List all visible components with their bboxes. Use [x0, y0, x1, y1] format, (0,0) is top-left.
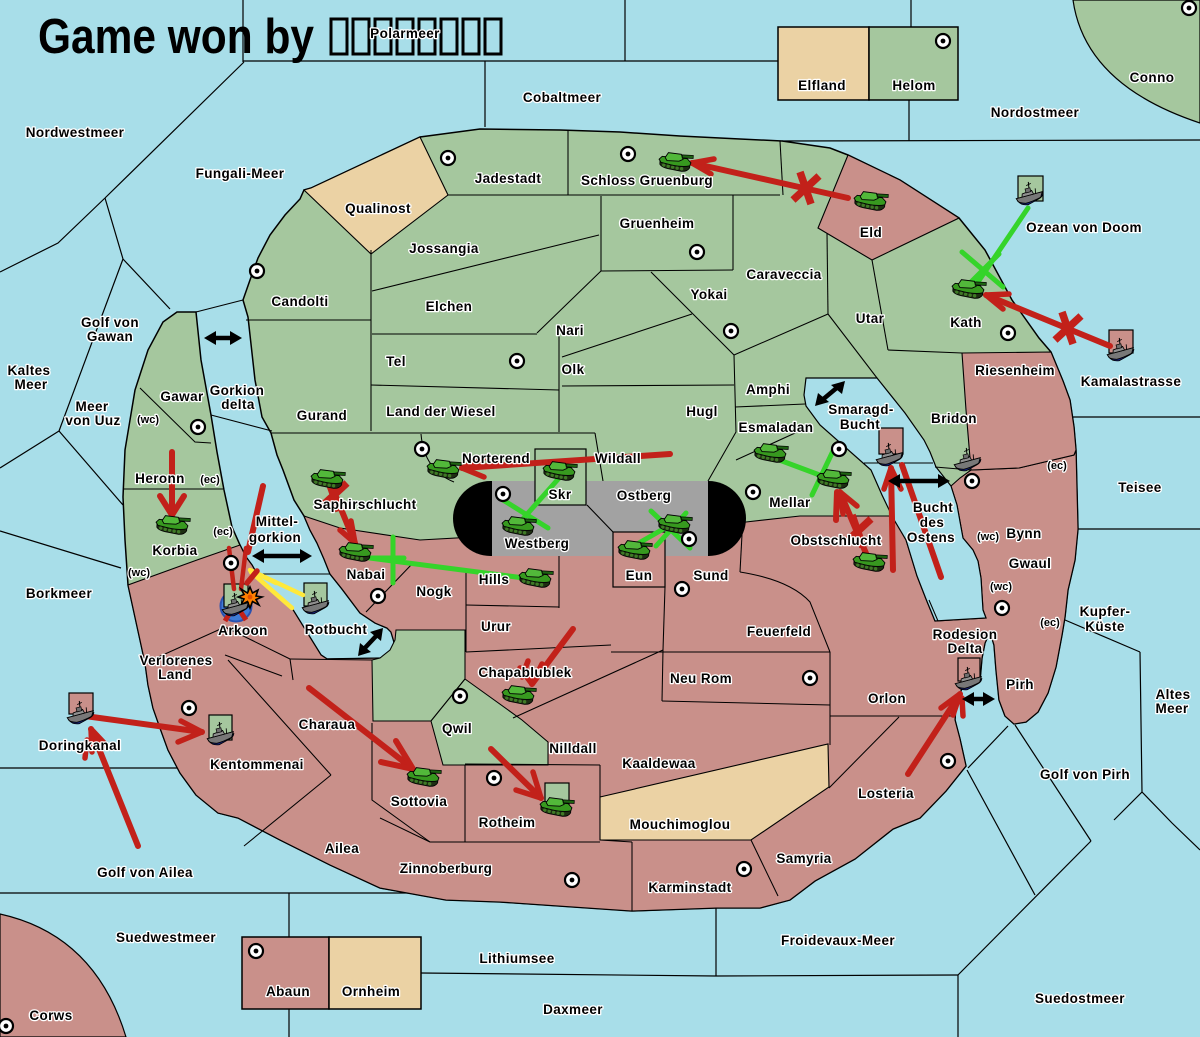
svg-text:Teisee: Teisee [1118, 480, 1162, 495]
svg-text:Amphi: Amphi [746, 382, 790, 397]
svg-text:Küste: Küste [1085, 619, 1125, 634]
svg-text:Delta: Delta [947, 641, 982, 656]
svg-text:Kentommenai: Kentommenai [210, 757, 304, 772]
svg-text:Chapablublek: Chapablublek [478, 665, 571, 680]
svg-text:Kaltes: Kaltes [8, 363, 51, 378]
svg-text:Wildall: Wildall [595, 451, 641, 466]
svg-text:Nogk: Nogk [416, 584, 451, 599]
svg-text:Caraveccia: Caraveccia [746, 267, 821, 282]
svg-text:Sund: Sund [693, 568, 728, 583]
svg-text:Arkoon: Arkoon [218, 623, 268, 638]
svg-text:Nilldall: Nilldall [549, 741, 596, 756]
svg-text:Rodesion: Rodesion [933, 627, 998, 642]
svg-text:Candolti: Candolti [271, 294, 328, 309]
svg-text:Kamalastrasse: Kamalastrasse [1081, 374, 1182, 389]
svg-text:Losteria: Losteria [858, 786, 914, 801]
svg-text:Corws: Corws [29, 1008, 72, 1023]
svg-text:Daxmeer: Daxmeer [543, 1002, 603, 1017]
svg-text:Nordostmeer: Nordostmeer [991, 105, 1080, 120]
svg-text:Bucht: Bucht [913, 500, 953, 515]
svg-text:Helom: Helom [892, 78, 935, 93]
svg-text:Conno: Conno [1130, 70, 1175, 85]
svg-text:Feuerfeld: Feuerfeld [747, 624, 811, 639]
svg-text:Sottovia: Sottovia [391, 794, 448, 809]
svg-text:Samyria: Samyria [776, 851, 831, 866]
svg-text:Qualinost: Qualinost [345, 201, 411, 216]
svg-text:Eld: Eld [860, 225, 882, 240]
svg-text:(wc): (wc) [977, 531, 999, 543]
svg-text:(wc): (wc) [128, 567, 150, 579]
svg-text:(wc): (wc) [137, 414, 159, 426]
svg-text:Polarmeer: Polarmeer [370, 26, 440, 41]
svg-text:Rotheim: Rotheim [479, 815, 536, 830]
svg-text:Orlon: Orlon [868, 691, 906, 706]
svg-text:Skr: Skr [549, 487, 572, 502]
svg-text:Bynn: Bynn [1006, 526, 1041, 541]
svg-text:Karminstadt: Karminstadt [648, 880, 731, 895]
svg-text:Kupfer-: Kupfer- [1080, 604, 1131, 619]
svg-text:Game won by: Game won by [38, 10, 314, 64]
svg-text:des: des [920, 515, 944, 530]
svg-text:Utar: Utar [856, 311, 885, 326]
svg-text:Kaaldewaa: Kaaldewaa [622, 756, 695, 771]
svg-text:Suedwestmeer: Suedwestmeer [116, 930, 216, 945]
svg-text:Rotbucht: Rotbucht [305, 622, 368, 637]
svg-text:Meer: Meer [1155, 701, 1188, 716]
svg-text:Gwaul: Gwaul [1009, 556, 1052, 571]
svg-text:Fungali-Meer: Fungali-Meer [196, 166, 285, 181]
svg-text:Mouchimoglou: Mouchimoglou [630, 817, 731, 832]
svg-text:Heronn: Heronn [135, 471, 185, 486]
svg-text:Ostberg: Ostberg [617, 488, 672, 503]
svg-text:Riesenheim: Riesenheim [975, 363, 1055, 378]
svg-text:Tel: Tel [386, 354, 406, 369]
svg-text:Gawar: Gawar [160, 389, 204, 404]
svg-text:Verlorenes: Verlorenes [139, 653, 212, 668]
svg-text:Froidevaux-Meer: Froidevaux-Meer [781, 933, 895, 948]
svg-text:Nordwestmeer: Nordwestmeer [26, 125, 125, 140]
svg-text:Suedostmeer: Suedostmeer [1035, 991, 1125, 1006]
svg-text:Land: Land [158, 667, 192, 682]
svg-text:Olk: Olk [562, 362, 585, 377]
svg-text:Smaragd-: Smaragd- [828, 402, 893, 417]
svg-text:Ostens: Ostens [907, 530, 955, 545]
svg-text:Korbia: Korbia [152, 543, 197, 558]
svg-text:(wc): (wc) [990, 581, 1012, 593]
svg-text:Ozean von Doom: Ozean von Doom [1026, 220, 1142, 235]
svg-text:Yokai: Yokai [690, 287, 727, 302]
svg-text:Urur: Urur [481, 619, 511, 634]
svg-text:Pirh: Pirh [1006, 677, 1034, 692]
svg-text:Kath: Kath [950, 315, 982, 330]
svg-text:Gawan: Gawan [87, 329, 133, 344]
svg-text:(ec): (ec) [213, 526, 233, 538]
svg-text:Ornheim: Ornheim [342, 984, 400, 999]
svg-text:Lithiumsee: Lithiumsee [479, 951, 554, 966]
svg-text:Zinnoberburg: Zinnoberburg [400, 861, 493, 876]
svg-text:Hills: Hills [479, 572, 510, 587]
svg-text:Qwil: Qwil [442, 721, 472, 736]
svg-text:Cobaltmeer: Cobaltmeer [523, 90, 602, 105]
svg-text:(ec): (ec) [1047, 460, 1067, 472]
svg-text:gorkion: gorkion [249, 530, 301, 545]
svg-text:von Uuz: von Uuz [65, 413, 120, 428]
svg-text:Doringkanal: Doringkanal [39, 738, 121, 753]
svg-text:Esmaladan: Esmaladan [739, 420, 814, 435]
svg-text:Norterend: Norterend [462, 451, 530, 466]
svg-text:Gurand: Gurand [297, 408, 347, 423]
svg-text:Neu Rom: Neu Rom [670, 671, 732, 686]
svg-text:Ailea: Ailea [325, 841, 359, 856]
svg-text:Gruenheim: Gruenheim [620, 216, 695, 231]
svg-text:Golf von Pirh: Golf von Pirh [1040, 767, 1130, 782]
svg-text:Hugl: Hugl [686, 404, 718, 419]
svg-text:Obstschlucht: Obstschlucht [790, 533, 881, 548]
svg-text:Mellar: Mellar [769, 495, 811, 510]
svg-text:(ec): (ec) [200, 474, 220, 486]
svg-text:Meer: Meer [14, 377, 47, 392]
svg-text:(ec): (ec) [1040, 617, 1060, 629]
svg-text:Charaua: Charaua [299, 717, 356, 732]
svg-text:Jadestadt: Jadestadt [475, 171, 542, 186]
svg-text:Borkmeer: Borkmeer [26, 586, 93, 601]
svg-text:Jossangia: Jossangia [409, 241, 479, 256]
svg-text:delta: delta [221, 397, 255, 412]
svg-text:Mittel-: Mittel- [256, 514, 299, 529]
svg-text:Land der Wiesel: Land der Wiesel [386, 404, 495, 419]
svg-text:Golf von: Golf von [81, 315, 139, 330]
svg-text:Saphirschlucht: Saphirschlucht [313, 497, 416, 512]
svg-text:Meer: Meer [75, 399, 108, 414]
svg-text:Schloss Gruenburg: Schloss Gruenburg [581, 173, 713, 188]
svg-text:Abaun: Abaun [266, 984, 310, 999]
svg-text:Bucht: Bucht [840, 417, 880, 432]
svg-text:Nabai: Nabai [347, 567, 386, 582]
svg-text:Eun: Eun [626, 568, 653, 583]
svg-text:Golf von Ailea: Golf von Ailea [97, 865, 193, 880]
svg-text:Gorkion: Gorkion [210, 383, 265, 398]
svg-text:Elchen: Elchen [426, 299, 473, 314]
svg-text:Elfland: Elfland [798, 78, 846, 93]
svg-text:Bridon: Bridon [931, 411, 977, 426]
svg-text:Altes: Altes [1155, 687, 1190, 702]
svg-text:Nari: Nari [556, 323, 584, 338]
svg-text:Westberg: Westberg [505, 536, 569, 551]
